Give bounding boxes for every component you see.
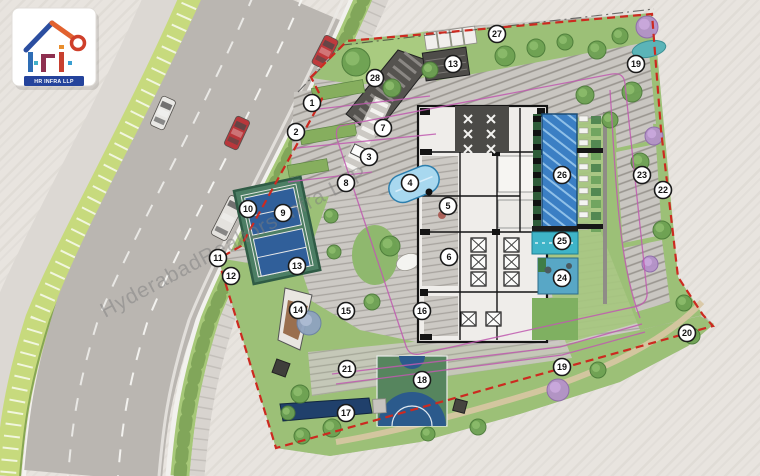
tree-green bbox=[602, 112, 618, 128]
svg-text:4: 4 bbox=[407, 178, 412, 188]
plan-marker-3: 3 bbox=[361, 149, 378, 166]
elevator-core bbox=[504, 238, 519, 252]
plan-marker-28: 28 bbox=[367, 70, 384, 87]
tree-green bbox=[470, 419, 486, 435]
pool-divider bbox=[532, 226, 578, 232]
svg-text:23: 23 bbox=[637, 170, 647, 180]
svg-text:11: 11 bbox=[213, 253, 223, 263]
elevator-core bbox=[504, 272, 519, 286]
svg-text:19: 19 bbox=[631, 59, 641, 69]
elevator-core bbox=[471, 272, 486, 286]
deck-planter-bar-2 bbox=[577, 224, 604, 229]
pool-pad bbox=[373, 399, 387, 414]
site-plan-canvas: HyderabadRealtors Infra LLP 123456789101… bbox=[0, 0, 760, 476]
svg-text:3: 3 bbox=[366, 152, 371, 162]
lounge-chair bbox=[579, 212, 588, 218]
plan-marker-10: 10 bbox=[240, 201, 257, 218]
elevator-core bbox=[504, 255, 519, 269]
plan-marker-4: 4 bbox=[402, 175, 419, 192]
elevator-core bbox=[486, 312, 501, 326]
roof-deck bbox=[455, 106, 509, 152]
tree-purple bbox=[547, 379, 569, 401]
tree-green bbox=[557, 34, 573, 50]
deck-planter-bar-1 bbox=[577, 148, 604, 153]
tree-green bbox=[421, 427, 435, 441]
svg-text:25: 25 bbox=[557, 236, 567, 246]
svg-text:17: 17 bbox=[341, 408, 351, 418]
tree-green bbox=[327, 245, 341, 259]
plan-marker-5: 5 bbox=[440, 198, 457, 215]
logo: HR INFRA LLP bbox=[12, 8, 99, 90]
svg-text:5: 5 bbox=[445, 201, 450, 211]
svg-text:10: 10 bbox=[243, 204, 253, 214]
tree-green bbox=[527, 39, 545, 57]
tree-green bbox=[588, 41, 606, 59]
tree-green bbox=[653, 221, 671, 239]
plan-marker-18: 18 bbox=[414, 372, 431, 389]
tree-green bbox=[422, 62, 438, 78]
svg-text:6: 6 bbox=[446, 252, 451, 262]
tree-green bbox=[291, 385, 309, 403]
svg-text:1: 1 bbox=[309, 98, 314, 108]
deck-planter bbox=[591, 152, 601, 160]
plan-marker-19: 19 bbox=[554, 359, 571, 376]
tree-green bbox=[612, 28, 628, 44]
svg-text:22: 22 bbox=[658, 185, 668, 195]
lounge-chair bbox=[579, 140, 588, 146]
plan-marker-17: 17 bbox=[338, 405, 355, 422]
deck-planter bbox=[591, 128, 601, 136]
tree-green bbox=[495, 46, 515, 66]
plan-marker-26: 26 bbox=[554, 167, 571, 184]
tree-green bbox=[342, 48, 370, 76]
deck-planter bbox=[591, 212, 601, 220]
lounge-chair bbox=[579, 116, 588, 122]
plan-marker-8: 8 bbox=[338, 175, 355, 192]
svg-text:15: 15 bbox=[341, 306, 351, 316]
deck-planter bbox=[591, 176, 601, 184]
plan-marker-14: 14 bbox=[290, 302, 307, 319]
svg-text:13: 13 bbox=[448, 59, 458, 69]
deck-planter bbox=[591, 140, 601, 148]
svg-text:9: 9 bbox=[280, 208, 285, 218]
tree-green bbox=[324, 209, 338, 223]
plan-marker-19: 19 bbox=[628, 56, 645, 73]
svg-text:13: 13 bbox=[292, 261, 302, 271]
svg-text:26: 26 bbox=[557, 170, 567, 180]
plan-marker-2: 2 bbox=[288, 124, 305, 141]
logo-magnifier-icon bbox=[72, 37, 85, 50]
plan-marker-1: 1 bbox=[304, 95, 321, 112]
tree-green bbox=[364, 294, 380, 310]
svg-text:14: 14 bbox=[293, 305, 303, 315]
lounge-chair bbox=[579, 176, 588, 182]
svg-text:24: 24 bbox=[557, 273, 567, 283]
plan-marker-27: 27 bbox=[489, 26, 506, 43]
plan-marker-24: 24 bbox=[554, 270, 571, 287]
elevator-core bbox=[461, 312, 476, 326]
plan-marker-12: 12 bbox=[223, 268, 240, 285]
deck-planter bbox=[591, 116, 601, 124]
plan-marker-7: 7 bbox=[375, 120, 392, 137]
tree-green bbox=[590, 362, 606, 378]
plan-marker-21: 21 bbox=[339, 361, 356, 378]
elevator-core bbox=[471, 255, 486, 269]
svg-text:27: 27 bbox=[492, 29, 502, 39]
lounge-chair bbox=[579, 188, 588, 194]
svg-text:28: 28 bbox=[370, 73, 380, 83]
building-footprint bbox=[418, 106, 547, 342]
deck-planter bbox=[591, 200, 601, 208]
lounge-chair bbox=[579, 128, 588, 134]
svg-text:18: 18 bbox=[417, 375, 427, 385]
deck-lawn bbox=[532, 298, 578, 340]
tree-green bbox=[383, 79, 401, 97]
svg-text:16: 16 bbox=[417, 306, 427, 316]
lounge-chair bbox=[579, 200, 588, 206]
feature-dot bbox=[426, 189, 433, 196]
svg-text:12: 12 bbox=[226, 271, 236, 281]
logo-brand-text: HR INFRA LLP bbox=[34, 79, 74, 85]
tree-green bbox=[281, 406, 295, 420]
deck-planter bbox=[591, 188, 601, 196]
svg-text:7: 7 bbox=[380, 123, 385, 133]
plan-marker-11: 11 bbox=[210, 250, 227, 267]
plan-marker-16: 16 bbox=[414, 303, 431, 320]
tree-green bbox=[576, 86, 594, 104]
deck-planter bbox=[591, 164, 601, 172]
deck-edge-wall bbox=[603, 112, 607, 304]
tree-green bbox=[676, 295, 692, 311]
plan-marker-15: 15 bbox=[338, 303, 355, 320]
svg-text:2: 2 bbox=[293, 127, 298, 137]
plan-marker-6: 6 bbox=[441, 249, 458, 266]
plan-marker-13: 13 bbox=[289, 258, 306, 275]
lounge-chair bbox=[579, 164, 588, 170]
plan-marker-20: 20 bbox=[679, 325, 696, 342]
plan-marker-22: 22 bbox=[655, 182, 672, 199]
basketball-half-court bbox=[377, 356, 447, 426]
svg-text:20: 20 bbox=[682, 328, 692, 338]
svg-text:19: 19 bbox=[557, 362, 567, 372]
plan-marker-23: 23 bbox=[634, 167, 651, 184]
plan-marker-9: 9 bbox=[275, 205, 292, 222]
plan-marker-25: 25 bbox=[554, 233, 571, 250]
site-plan-image: HyderabadRealtors Infra LLP 123456789101… bbox=[0, 0, 760, 476]
plan-marker-13: 13 bbox=[445, 56, 462, 73]
elevator-core bbox=[471, 238, 486, 252]
tree-green bbox=[380, 236, 400, 256]
svg-text:8: 8 bbox=[343, 178, 348, 188]
svg-text:21: 21 bbox=[342, 364, 352, 374]
